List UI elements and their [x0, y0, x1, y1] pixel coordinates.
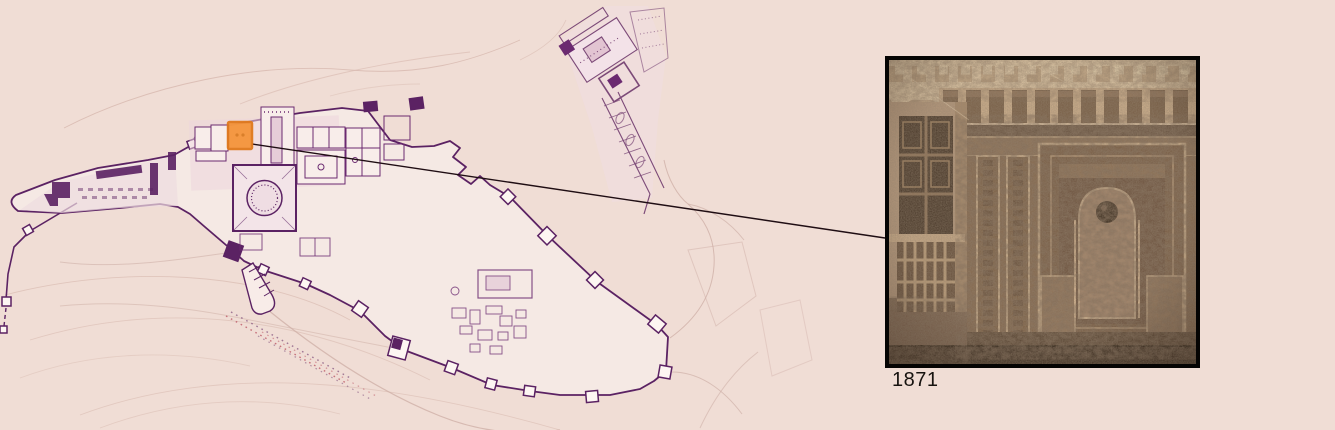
photo-caption: 1871 — [892, 368, 939, 392]
alcazaba — [20, 152, 178, 213]
charles-v-palace-rotunda — [233, 165, 296, 231]
photo-inset[interactable] — [885, 56, 1200, 368]
canvas: 1871 — [0, 0, 1335, 430]
historic-photo-1871 — [889, 60, 1196, 364]
generalife — [554, 4, 668, 214]
tree-avenue-dots — [226, 312, 376, 400]
map-highlight-marker[interactable] — [228, 122, 252, 149]
